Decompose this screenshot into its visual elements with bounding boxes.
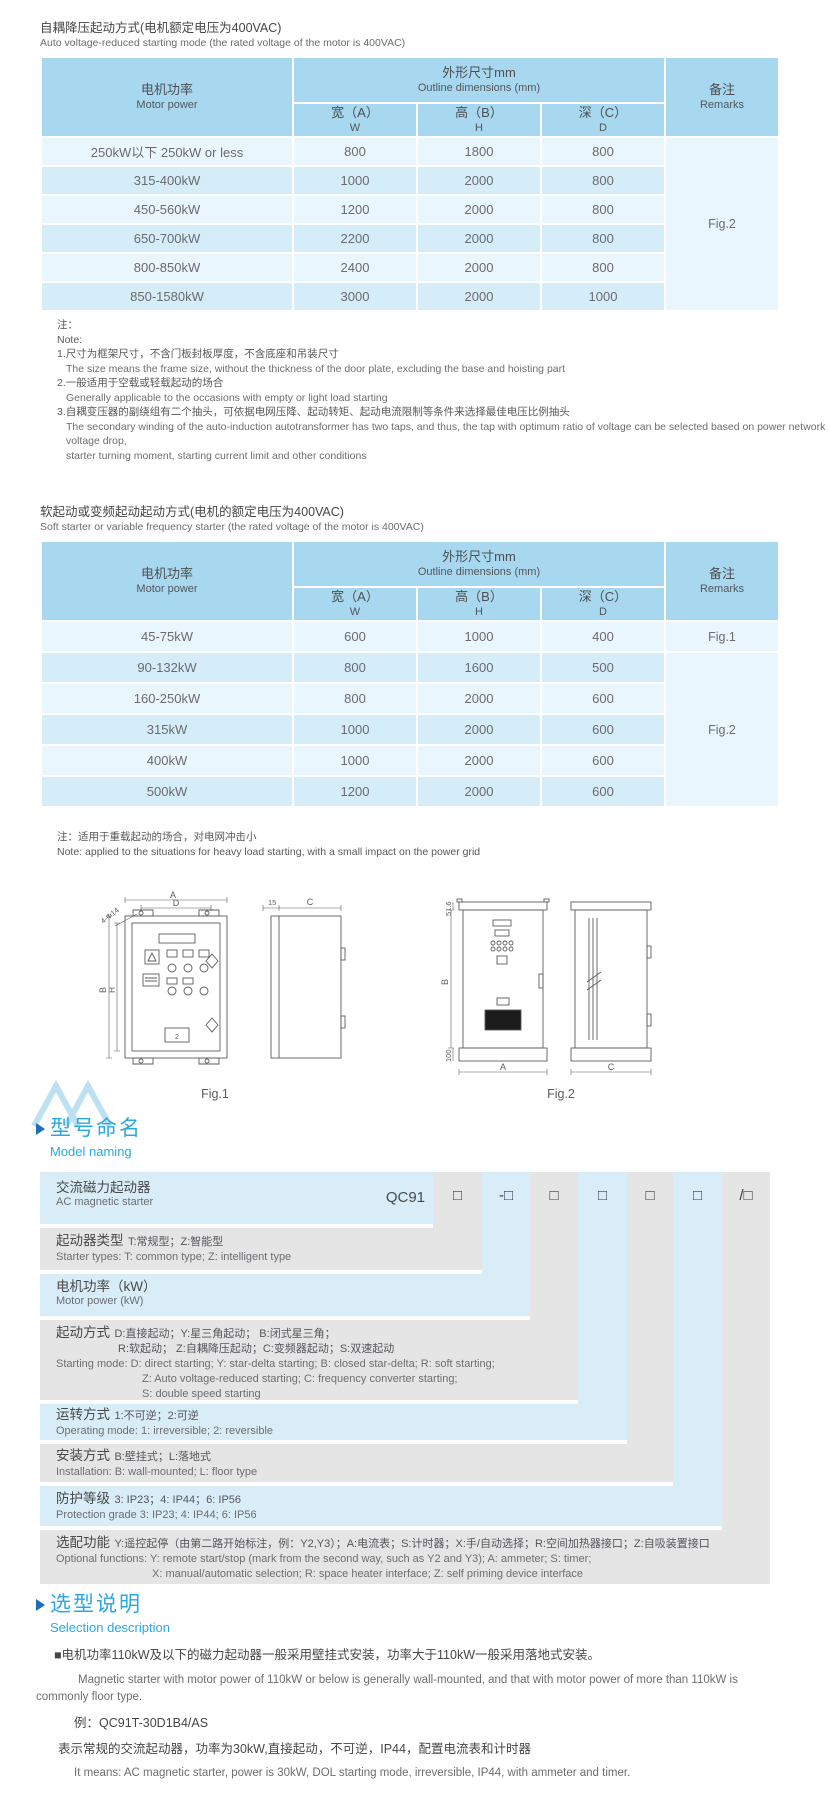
code-column-6: □: [673, 1172, 722, 1526]
cell-h: 1000: [418, 622, 540, 651]
fig1-dim-b-label: B: [98, 987, 108, 993]
model-naming-heading: 型号命名 Model naming: [36, 1112, 142, 1159]
outline-drawings: A D 4-Φ14 B H 15 C 2 51.6 B 100 A C Fig.…: [95, 890, 755, 1105]
table-row: 45-75kW 600 1000 400 Fig.1: [42, 622, 778, 651]
row-detail-en: Starter types: T: common type; Z: intell…: [56, 1250, 482, 1265]
model-naming-heading-en: Model naming: [50, 1144, 142, 1159]
note-line: 2.一般适用于空载或轻载起动的场合: [57, 376, 830, 391]
header-en: Motor power: [42, 98, 292, 112]
cell-power: 315-400kW: [42, 167, 292, 194]
code-box: □: [598, 1187, 607, 1204]
cell-h: 2000: [418, 715, 540, 744]
cell-w: 1000: [294, 167, 416, 194]
model-row-optional-functions: 选配功能 Y:遥控起停（由第二路开始标注，例：Y2,Y3）；A:电流表；S:计时…: [40, 1530, 770, 1584]
row-detail-en: Operating mode: 1: irreversible; 2: reve…: [56, 1424, 627, 1439]
cell-h: 2000: [418, 746, 540, 775]
col-header-remarks: 备注 Remarks: [666, 542, 778, 620]
code-box: /□: [739, 1187, 752, 1204]
fig1-side-view: [271, 916, 345, 1058]
model-row-installation: 安装方式 B:壁挂式；L:落地式 Installation: B: wall-m…: [40, 1444, 673, 1482]
fig2-dim-c-label: C: [608, 1062, 615, 1072]
col-header-width: 宽（A） W: [294, 104, 416, 136]
selection-meaning-zh: 表示常规的交流起动器，功率为30kW,直接起动，不可逆，IP44，配置电流表和计…: [58, 1741, 796, 1758]
selection-paragraph-en: Magnetic starter with motor power of 110…: [36, 1672, 788, 1706]
cell-d: 800: [542, 196, 664, 223]
row-detail-zh: B:壁挂式；L:落地式: [114, 1451, 211, 1463]
header-zh: 电机功率: [42, 82, 292, 98]
fig1-dim-h-label: H: [108, 987, 117, 993]
cell-h: 2000: [418, 777, 540, 806]
fig2-front-view: [457, 899, 549, 1061]
row-detail-en: Installation: B: wall-mounted; L: floor …: [56, 1465, 673, 1480]
cell-w: 2200: [294, 225, 416, 252]
fig1-holes-label: 4-Φ14: [99, 906, 121, 926]
fig1-caption: Fig.1: [201, 1087, 229, 1101]
selection-paragraph-zh: ■电机功率110kW及以下的磁力起动器一般采用壁挂式安装，功率大于110kW一般…: [54, 1647, 796, 1664]
header-zh: 外形尺寸mm: [294, 549, 664, 565]
col-header-motor-power: 电机功率 Motor power: [42, 58, 292, 136]
selection-heading-zh: 选型说明: [50, 1593, 142, 1616]
cell-h: 2000: [418, 167, 540, 194]
header-en: H: [418, 605, 540, 619]
cell-d: 800: [542, 167, 664, 194]
col-header-height: 高（B） H: [418, 104, 540, 136]
section1-notes: 注： Note: 1.尺寸为框架尺寸，不含门板封板厚度，不含底座和吊装尺寸 Th…: [57, 318, 830, 463]
cell-d: 600: [542, 746, 664, 775]
cell-power: 800-850kW: [42, 254, 292, 281]
cell-power: 250kW以下 250kW or less: [42, 138, 292, 165]
cell-d: 400: [542, 622, 664, 651]
cell-d: 600: [542, 715, 664, 744]
header-zh: 高（B）: [418, 105, 540, 121]
cell-d: 500: [542, 653, 664, 682]
row-label: 电机功率（kW）: [56, 1279, 157, 1294]
model-row-operating-mode: 运转方式 1:不可逆；2:可逆 Operating mode: 1: irrev…: [40, 1404, 627, 1440]
header-zh: 电机功率: [42, 566, 292, 582]
section2-note: 注：适用于重载起动的场合，对电网冲击小 Note: applied to the…: [57, 830, 480, 859]
row-detail-zh: D:直接起动；Y:星三角起动； B:闭式星三角；: [114, 1328, 335, 1340]
cell-d: 800: [542, 254, 664, 281]
cell-w: 3000: [294, 283, 416, 310]
fig1-dim-c-label: C: [307, 897, 314, 907]
figure-labels: A D 4-Φ14 B H 15 C 2 51.6 B 100 A C Fig.…: [98, 890, 615, 1101]
row-detail-zh: Y:遥控起停（由第二路开始标注，例：Y2,Y3）；A:电流表；S:计时器；X:手…: [114, 1538, 709, 1550]
col-header-outline-dimensions: 外形尺寸mm Outline dimensions (mm): [294, 542, 664, 586]
section1-title-en: Auto voltage-reduced starting mode (the …: [40, 36, 405, 51]
cell-d: 800: [542, 138, 664, 165]
cell-remark: Fig.1: [666, 622, 778, 651]
cell-power: 45-75kW: [42, 622, 292, 651]
catalog-page: 自耦降压起动方式(电机额定电压为400VAC) Auto voltage-red…: [0, 0, 830, 1797]
col-header-height: 高（B） H: [418, 588, 540, 620]
header-zh: 高（B）: [418, 589, 540, 605]
code-box: □: [693, 1187, 702, 1204]
section2-title-en: Soft starter or variable frequency start…: [40, 520, 424, 535]
cell-h: 1600: [418, 653, 540, 682]
header-zh: 备注: [666, 566, 778, 582]
row-label: 选配功能: [56, 1535, 110, 1550]
code-box: □: [645, 1187, 654, 1204]
row-detail-zh: 3: IP23；4: IP44；6: IP56: [114, 1494, 241, 1506]
cell-h: 2000: [418, 196, 540, 223]
row-detail-en: Optional functions: Y: remote start/stop…: [56, 1552, 770, 1567]
header-en: W: [294, 121, 416, 135]
cell-d: 800: [542, 225, 664, 252]
note-line: Note: applied to the situations for heav…: [57, 845, 480, 860]
row-label: 起动器类型: [56, 1233, 124, 1248]
cell-h: 2000: [418, 225, 540, 252]
header-en: Outline dimensions (mm): [294, 81, 664, 95]
auto-voltage-table: 电机功率 Motor power 外形尺寸mm Outline dimensio…: [40, 56, 780, 312]
header-zh: 深（C）: [542, 105, 664, 121]
code-box: -□: [499, 1187, 513, 1204]
row-detail-en: Protection grade 3: IP23; 4: IP44; 6: IP…: [56, 1508, 722, 1523]
cell-power: 160-250kW: [42, 684, 292, 713]
note-line: 3.自耦变压器的副绕组有二个抽头，可依据电网压降、起动转矩、起动电流限制等条件来…: [57, 405, 830, 420]
model-code-prefix: QC91: [386, 1189, 425, 1206]
col-header-motor-power: 电机功率 Motor power: [42, 542, 292, 620]
cell-h: 2000: [418, 684, 540, 713]
cell-w: 1200: [294, 196, 416, 223]
cell-power: 650-700kW: [42, 225, 292, 252]
col-header-outline-dimensions: 外形尺寸mm Outline dimensions (mm): [294, 58, 664, 102]
cell-power: 450-560kW: [42, 196, 292, 223]
row-detail-en: Starting mode: D: direct starting; Y: st…: [56, 1357, 578, 1372]
row-detail-en: S: double speed starting: [56, 1387, 578, 1402]
note-line: 注：适用于重载起动的场合，对电网冲击小: [57, 830, 480, 845]
cell-w: 600: [294, 622, 416, 651]
fig2-side-view: [571, 902, 651, 1061]
header-en: Remarks: [666, 98, 778, 112]
header-en: Remarks: [666, 582, 778, 596]
code-box: □: [549, 1187, 558, 1204]
cell-d: 600: [542, 684, 664, 713]
cell-w: 2400: [294, 254, 416, 281]
fig2-top-dim-label: 51.6: [444, 901, 453, 916]
header-en: D: [542, 121, 664, 135]
model-naming-heading-zh: 型号命名: [50, 1117, 142, 1140]
section1-title-zh: 自耦降压起动方式(电机额定电压为400VAC): [40, 20, 405, 36]
header-zh: 备注: [666, 82, 778, 98]
note-line: The secondary winding of the auto-induct…: [66, 420, 830, 449]
row-label: 防护等级: [56, 1491, 110, 1506]
selection-example: 例：QC91T-30D1B4/AS: [74, 1715, 796, 1732]
col-header-depth: 深（C） D: [542, 588, 664, 620]
fig2-base-dim-label: 100: [444, 1049, 453, 1062]
note-line: starter turning moment, starting current…: [66, 449, 830, 464]
cell-h: 1800: [418, 138, 540, 165]
header-zh: 深（C）: [542, 589, 664, 605]
header-zh: 宽（A）: [294, 105, 416, 121]
model-naming-table: □ -□ □ □ □ □ /□ 交流磁力起动器 AC magnetic star…: [40, 1172, 770, 1584]
product-name-en: AC magnetic starter: [56, 1195, 433, 1210]
row-label: 起动方式: [56, 1325, 110, 1340]
fig2-dim-b-label: B: [440, 979, 450, 985]
row-label: 运转方式: [56, 1407, 110, 1422]
cell-w: 800: [294, 138, 416, 165]
cell-remark: Fig.2: [666, 138, 778, 310]
row-detail-zh: 1:不可逆；2:可逆: [114, 1410, 198, 1422]
row-detail-en: Motor power (kW): [56, 1294, 530, 1309]
selection-meaning-en: It means: AC magnetic starter, power is …: [74, 1765, 796, 1782]
section1-title: 自耦降压起动方式(电机额定电压为400VAC) Auto voltage-red…: [40, 20, 405, 51]
fig1-dim-d-label: D: [173, 898, 180, 908]
col-header-width: 宽（A） W: [294, 588, 416, 620]
cell-d: 1000: [542, 283, 664, 310]
header-zh: 宽（A）: [294, 589, 416, 605]
section2-title-zh: 软起动或变频起动起动方式(电机的额定电压为400VAC): [40, 504, 424, 520]
note-line: Note:: [57, 333, 830, 348]
fig2-caption: Fig.2: [547, 1087, 575, 1101]
cell-d: 600: [542, 777, 664, 806]
cell-w: 800: [294, 653, 416, 682]
model-row-starter-type: 起动器类型 T:常规型；Z:智能型 Starter types: T: comm…: [40, 1228, 482, 1270]
cell-h: 2000: [418, 254, 540, 281]
header-en: Outline dimensions (mm): [294, 565, 664, 579]
col-header-remarks: 备注 Remarks: [666, 58, 778, 136]
model-row-motor-power: 电机功率（kW） Motor power (kW): [40, 1274, 530, 1316]
cell-w: 1000: [294, 746, 416, 775]
cell-w: 1000: [294, 715, 416, 744]
cell-power: 315kW: [42, 715, 292, 744]
cell-w: 1200: [294, 777, 416, 806]
fig1-flange-label: 15: [268, 898, 276, 907]
code-box: □: [453, 1187, 462, 1204]
note-line: Generally applicable to the occasions wi…: [66, 391, 830, 406]
header-zh: 外形尺寸mm: [294, 65, 664, 81]
row-detail-zh2: R:软起动； Z:自耦降压起动；C:变频器起动；S:双速起动: [56, 1342, 578, 1357]
row-detail-en: Z: Auto voltage-reduced starting; C: fre…: [56, 1372, 578, 1387]
table-row: 90-132kW 800 1600 500 Fig.2: [42, 653, 778, 682]
cell-power: 500kW: [42, 777, 292, 806]
model-row-protection-grade: 防护等级 3: IP23；4: IP44；6: IP56 Protection …: [40, 1486, 722, 1526]
code-column-7: /□: [722, 1172, 770, 1584]
header-en: H: [418, 121, 540, 135]
model-row-starting-mode: 起动方式 D:直接起动；Y:星三角起动； B:闭式星三角； R:软起动； Z:自…: [40, 1320, 578, 1400]
cell-h: 2000: [418, 283, 540, 310]
header-en: Motor power: [42, 582, 292, 596]
section-arrow-icon: [36, 1599, 45, 1611]
cell-w: 800: [294, 684, 416, 713]
cell-remark: Fig.2: [666, 653, 778, 806]
row-detail-en: X: manual/automatic selection; R: space …: [56, 1567, 770, 1582]
product-name-zh: 交流磁力起动器: [56, 1180, 433, 1195]
model-row-product: 交流磁力起动器 AC magnetic starter QC91: [40, 1172, 433, 1224]
fig1-panel-label: 2: [175, 1034, 179, 1041]
header-en: W: [294, 605, 416, 619]
cell-power: 90-132kW: [42, 653, 292, 682]
row-detail-zh: T:常规型；Z:智能型: [128, 1236, 223, 1248]
fig2-dimension-lines: [448, 902, 651, 1075]
selection-heading-en: Selection description: [50, 1620, 796, 1635]
code-column-4: □: [578, 1172, 627, 1440]
fig1-dimension-lines: [106, 897, 341, 1058]
section-arrow-icon: [36, 1123, 45, 1135]
cell-power: 400kW: [42, 746, 292, 775]
section2-title: 软起动或变频起动起动方式(电机的额定电压为400VAC) Soft starte…: [40, 504, 424, 535]
header-en: D: [542, 605, 664, 619]
code-column-5: □: [627, 1172, 673, 1482]
note-line: The size means the frame size, without t…: [66, 362, 830, 377]
soft-starter-table: 电机功率 Motor power 外形尺寸mm Outline dimensio…: [40, 540, 780, 808]
note-line: 1.尺寸为框架尺寸，不含门板封板厚度，不含底座和吊装尺寸: [57, 347, 830, 362]
cell-power: 850-1580kW: [42, 283, 292, 310]
table-row: 250kW以下 250kW or less 800 1800 800 Fig.2: [42, 138, 778, 165]
row-label: 安装方式: [56, 1448, 110, 1463]
selection-section: 选型说明 Selection description ■电机功率110kW及以下…: [36, 1588, 796, 1782]
note-line: 注：: [57, 318, 830, 333]
fig2-dim-a-label: A: [500, 1062, 506, 1072]
col-header-depth: 深（C） D: [542, 104, 664, 136]
